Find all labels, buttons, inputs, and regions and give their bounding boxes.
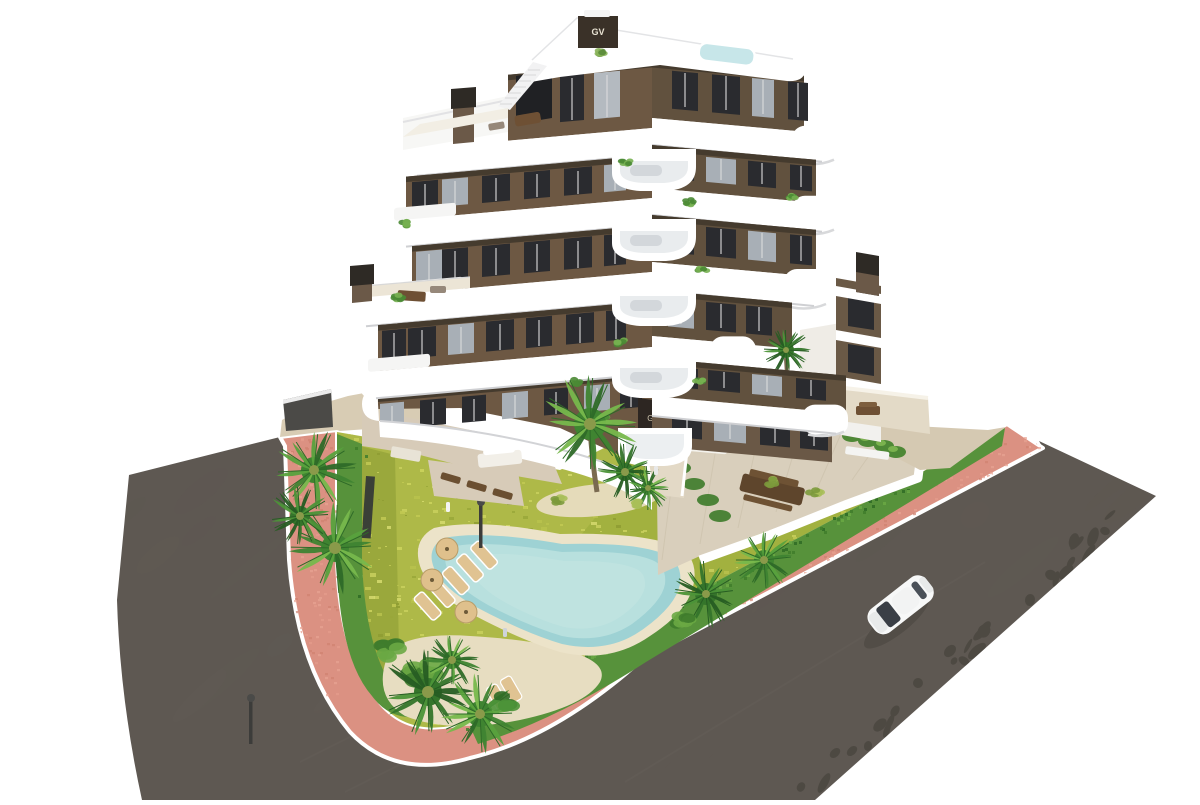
- svg-text:GV: GV: [591, 27, 604, 37]
